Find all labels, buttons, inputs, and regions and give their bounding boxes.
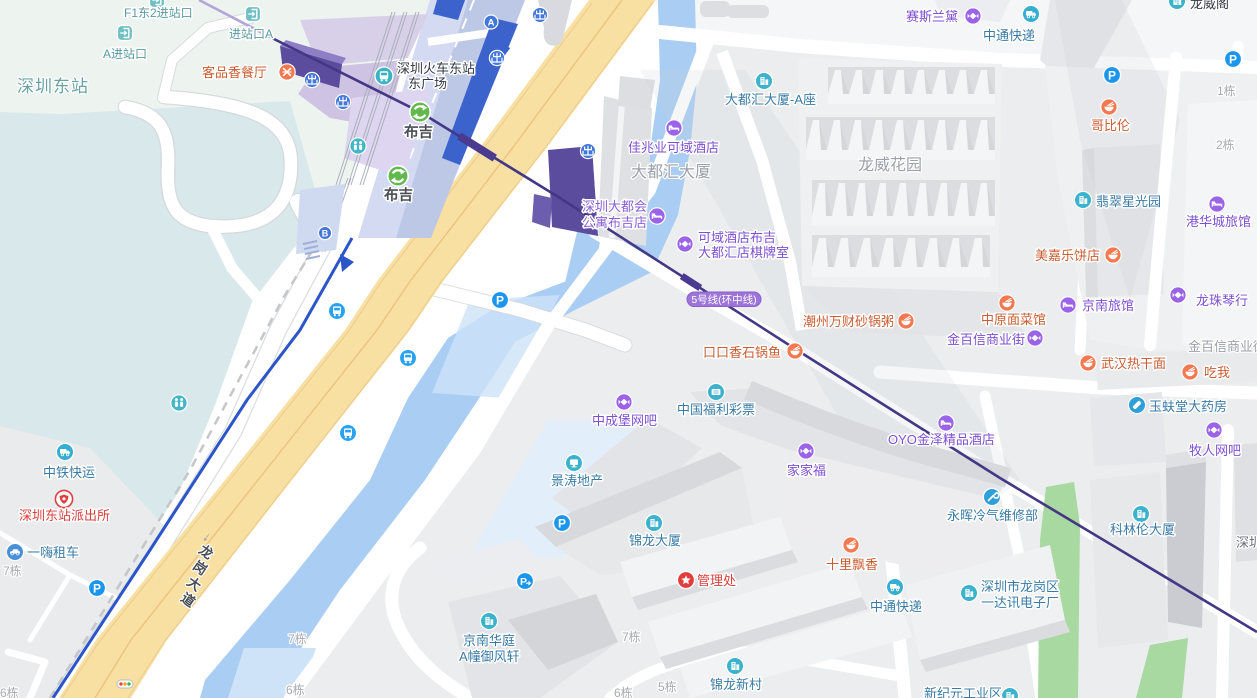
svg-text:佳兆业可域酒店: 佳兆业可域酒店 [628, 140, 719, 155]
svg-text:赛斯兰黛: 赛斯兰黛 [906, 9, 958, 24]
svg-text:港华城旅馆: 港华城旅馆 [1186, 214, 1251, 229]
svg-text:口口香石锅鱼: 口口香石锅鱼 [703, 345, 781, 360]
svg-text:玉蚨堂大药房: 玉蚨堂大药房 [1149, 399, 1227, 414]
svg-text:P: P [520, 576, 527, 588]
svg-text:哥比伦: 哥比伦 [1091, 118, 1130, 133]
svg-text:中铁快运: 中铁快运 [43, 465, 95, 480]
svg-text:B: B [322, 228, 329, 238]
svg-text:A: A [488, 18, 495, 29]
svg-text:景涛地产: 景涛地产 [551, 473, 603, 488]
svg-text:进站口A: 进站口A [229, 27, 273, 41]
svg-text:深圳火车东站: 深圳火车东站 [397, 61, 475, 76]
svg-text:金百信商业街: 金百信商业街 [947, 332, 1025, 347]
svg-text:7栋: 7栋 [622, 629, 641, 644]
svg-text:大都汇大厦-A座: 大都汇大厦-A座 [725, 92, 816, 107]
svg-text:金百信商业街: 金百信商业街 [1188, 339, 1257, 354]
svg-text:吃我: 吃我 [1204, 365, 1230, 380]
svg-text:美嘉乐饼店: 美嘉乐饼店 [1035, 248, 1100, 263]
svg-text:龙威花园: 龙威花园 [858, 156, 922, 174]
svg-text:深圳东站: 深圳东站 [17, 77, 89, 96]
svg-text:6栋: 6栋 [286, 682, 305, 697]
svg-text:深圳大都会: 深圳大都会 [582, 199, 647, 214]
svg-text:中通快递: 中通快递 [983, 28, 1035, 43]
svg-text:布吉: 布吉 [404, 123, 433, 141]
svg-text:5栋: 5栋 [658, 679, 677, 694]
svg-text:中国福利彩票: 中国福利彩票 [677, 402, 755, 417]
svg-text:2栋: 2栋 [1216, 137, 1235, 152]
svg-text:永晖冷气维修部: 永晖冷气维修部 [947, 508, 1038, 523]
svg-text:大都汇店棋牌室: 大都汇店棋牌室 [698, 245, 789, 260]
svg-text:公寓布吉店: 公寓布吉店 [582, 215, 647, 230]
svg-text:深圳市龙岗区: 深圳市龙岗区 [981, 579, 1059, 594]
svg-text:5号线(环中线): 5号线(环中线) [691, 293, 756, 306]
svg-text:OYO金泽精品酒店: OYO金泽精品酒店 [888, 432, 995, 447]
svg-text:大都汇大厦: 大都汇大厦 [631, 163, 711, 181]
svg-text:锦龙大厦: 锦龙大厦 [629, 533, 681, 548]
svg-text:A进站口: A进站口 [103, 47, 147, 61]
svg-text:东广场: 东广场 [408, 76, 447, 91]
svg-text:1栋: 1栋 [1217, 83, 1236, 98]
svg-text:家家福: 家家福 [787, 463, 826, 478]
svg-text:管理处: 管理处 [697, 573, 736, 588]
svg-text:京南旅馆: 京南旅馆 [1082, 298, 1134, 313]
svg-text:龙威阁: 龙威阁 [1190, 0, 1229, 11]
svg-text:F1东2进站口: F1东2进站口 [124, 6, 193, 20]
svg-text:中成堡网吧: 中成堡网吧 [592, 413, 657, 428]
svg-text:十里飘香: 十里飘香 [826, 557, 878, 572]
svg-text:潮州万财砂锅粥: 潮州万财砂锅粥 [803, 314, 894, 329]
svg-text:布吉: 布吉 [384, 186, 413, 204]
svg-text:翡翠星光园: 翡翠星光园 [1096, 194, 1161, 209]
svg-text:中通快递: 中通快递 [870, 599, 922, 614]
svg-text:京南华庭: 京南华庭 [463, 633, 515, 648]
svg-text:A幢御风轩: A幢御风轩 [459, 649, 520, 664]
svg-text:武汉热干面: 武汉热干面 [1101, 356, 1166, 371]
svg-text:可域酒店布吉: 可域酒店布吉 [698, 230, 776, 245]
svg-text:中原面菜馆: 中原面菜馆 [981, 312, 1046, 327]
svg-text:科林伦大厦: 科林伦大厦 [1110, 522, 1175, 537]
svg-text:新纪元工业区: 新纪元工业区 [924, 686, 1002, 698]
svg-text:6栋: 6栋 [614, 685, 633, 698]
svg-text:一达讯电子厂: 一达讯电子厂 [981, 595, 1059, 610]
svg-text:深圳: 深圳 [1236, 535, 1257, 550]
svg-text:龙珠琴行: 龙珠琴行 [1196, 293, 1248, 308]
svg-text:牧人网吧: 牧人网吧 [1189, 443, 1241, 458]
svg-text:深圳东站派出所: 深圳东站派出所 [19, 508, 110, 523]
svg-text:客品香餐厅: 客品香餐厅 [202, 65, 267, 80]
svg-text:一嗨租车: 一嗨租车 [27, 545, 79, 560]
svg-text:7栋: 7栋 [3, 563, 22, 578]
svg-text:6栋: 6栋 [0, 685, 19, 698]
svg-text:7栋: 7栋 [288, 631, 307, 646]
svg-text:锦龙新村: 锦龙新村 [710, 677, 762, 692]
